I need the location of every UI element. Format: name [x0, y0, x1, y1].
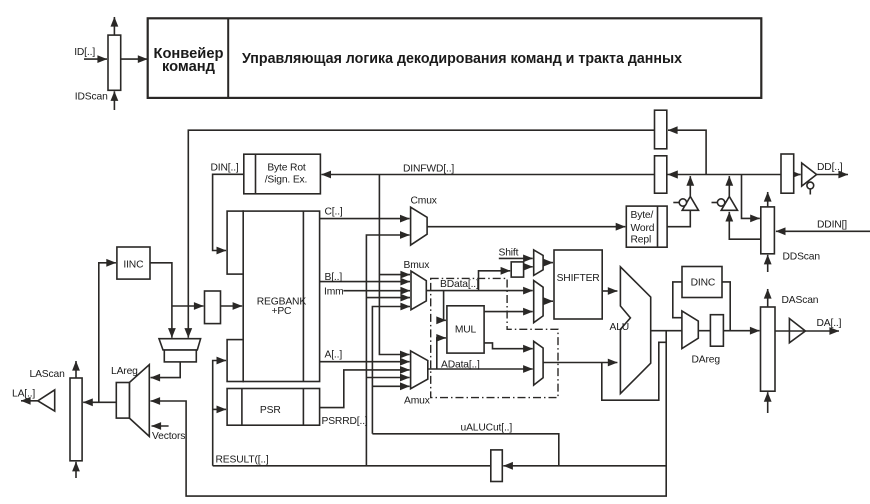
- svg-text:DA[..]: DA[..]: [817, 318, 842, 329]
- svg-text:Byte/: Byte/: [631, 210, 654, 221]
- svg-text:Cmux: Cmux: [411, 196, 438, 207]
- svg-text:Amux: Amux: [404, 395, 431, 406]
- svg-text:ALU: ALU: [610, 322, 630, 333]
- svg-text:Repl: Repl: [631, 234, 652, 245]
- svg-text:DINC: DINC: [691, 278, 716, 289]
- svg-text:B[..]: B[..]: [325, 272, 343, 283]
- svg-text:команд: команд: [162, 59, 216, 75]
- svg-text:LAScan: LAScan: [30, 369, 66, 380]
- svg-text:LAreg: LAreg: [111, 366, 138, 377]
- svg-text:C[..]: C[..]: [325, 207, 343, 218]
- svg-text:ID[..]: ID[..]: [74, 47, 95, 58]
- svg-text:A[..]: A[..]: [325, 350, 343, 361]
- svg-text:Word: Word: [631, 223, 655, 234]
- svg-text:PSR: PSR: [260, 405, 281, 416]
- svg-text:DDScan: DDScan: [783, 252, 821, 263]
- svg-text:IINC: IINC: [123, 259, 144, 270]
- svg-text:SHIFTER: SHIFTER: [557, 273, 600, 284]
- svg-text:DIN[..]: DIN[..]: [211, 163, 239, 174]
- svg-text:uALUCut[..]: uALUCut[..]: [461, 422, 513, 433]
- svg-text:Управляющая логика декодирован: Управляющая логика декодирования команд …: [242, 51, 683, 67]
- svg-text:DINFWD[..]: DINFWD[..]: [403, 163, 454, 174]
- svg-text:PSRRD[..]: PSRRD[..]: [322, 416, 368, 427]
- svg-text:Bmux: Bmux: [404, 260, 431, 271]
- svg-text:Vectors: Vectors: [152, 431, 185, 442]
- svg-text:+PC: +PC: [271, 306, 292, 317]
- svg-text:MUL: MUL: [455, 325, 477, 336]
- svg-text:DAScan: DAScan: [782, 295, 819, 306]
- svg-text:IDScan: IDScan: [75, 92, 108, 103]
- svg-text:AData[..]: AData[..]: [441, 359, 480, 370]
- svg-text:BData[..]: BData[..]: [440, 279, 479, 290]
- svg-text:Imm: Imm: [324, 286, 344, 297]
- svg-text:Shift: Shift: [499, 248, 519, 259]
- svg-text:/Sign. Ex.: /Sign. Ex.: [265, 175, 308, 186]
- svg-text:Byte Rot: Byte Rot: [267, 162, 306, 173]
- svg-text:DDIN[]: DDIN[]: [817, 220, 847, 231]
- svg-text:DAreg: DAreg: [692, 355, 721, 366]
- svg-text:LA[..]: LA[..]: [12, 388, 35, 399]
- svg-text:DD[..]: DD[..]: [817, 162, 843, 173]
- svg-text:RESULT([..]: RESULT([..]: [216, 454, 269, 465]
